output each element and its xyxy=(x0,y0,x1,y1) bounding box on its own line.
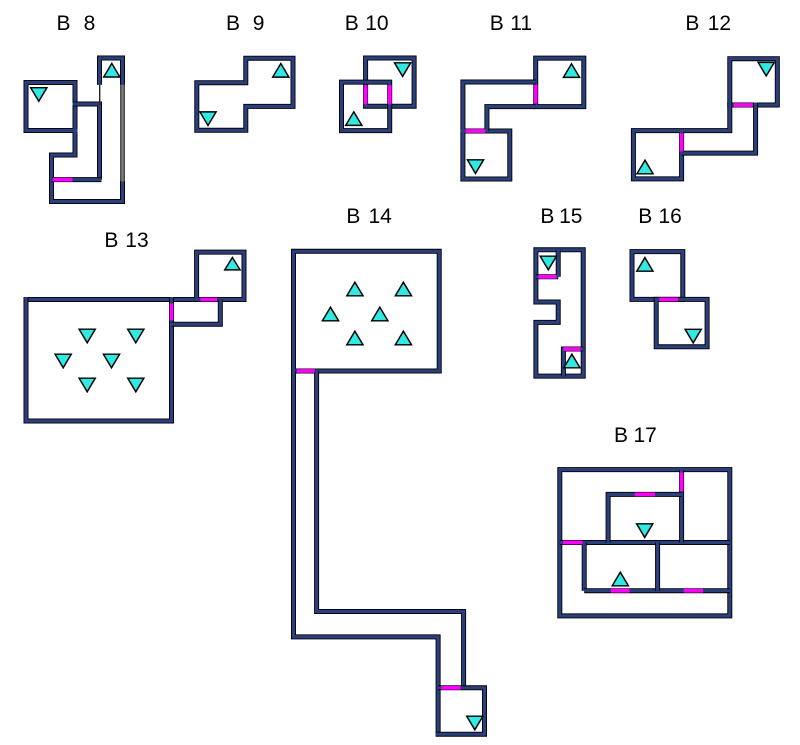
svg-text:B: B xyxy=(540,205,554,228)
svg-text:B: B xyxy=(490,12,504,35)
svg-text:B: B xyxy=(614,424,628,447)
svg-text:13: 13 xyxy=(125,229,148,252)
svg-text:14: 14 xyxy=(369,205,393,228)
svg-text:11: 11 xyxy=(510,12,532,35)
svg-text:16: 16 xyxy=(659,205,682,228)
svg-text:10: 10 xyxy=(365,12,388,35)
svg-text:B: B xyxy=(104,229,118,252)
svg-text:B: B xyxy=(685,12,699,35)
svg-text:B: B xyxy=(346,205,360,228)
svg-text:B: B xyxy=(638,205,652,228)
svg-text:15: 15 xyxy=(559,205,582,228)
svg-text:B: B xyxy=(345,12,359,35)
svg-text:12: 12 xyxy=(708,12,731,35)
svg-text:B: B xyxy=(57,12,71,35)
svg-text:17: 17 xyxy=(634,424,657,447)
svg-text:B: B xyxy=(226,12,240,35)
svg-text:9: 9 xyxy=(253,12,265,35)
svg-text:8: 8 xyxy=(84,12,96,35)
